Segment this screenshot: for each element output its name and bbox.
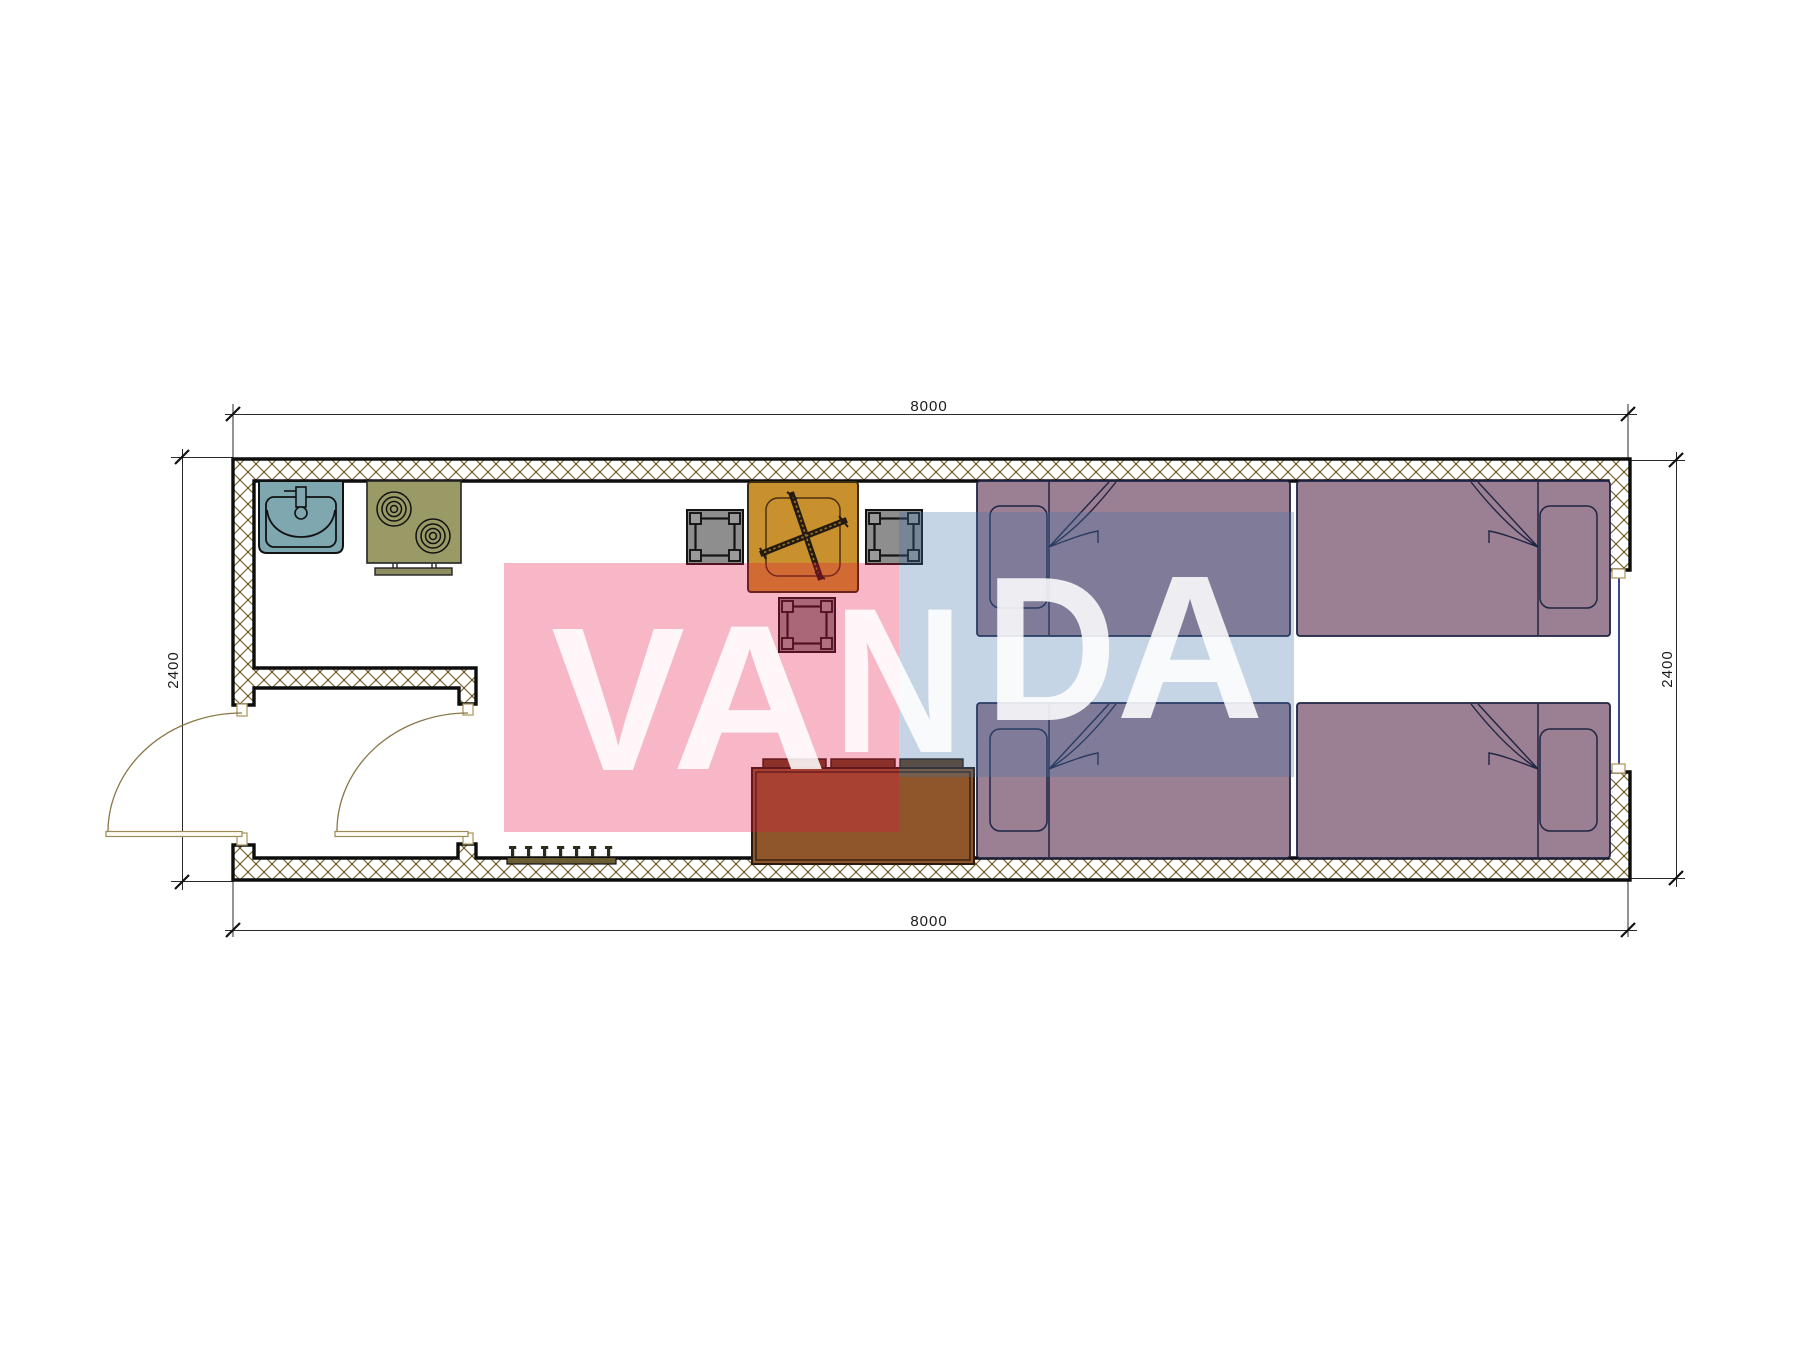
- svg-text:2400: 2400: [165, 651, 182, 688]
- svg-text:N: N: [833, 566, 964, 797]
- svg-text:A: A: [672, 582, 827, 813]
- svg-text:D: D: [985, 535, 1117, 765]
- svg-text:2400: 2400: [1659, 650, 1676, 687]
- svg-text:8000: 8000: [910, 398, 947, 415]
- svg-text:A: A: [1116, 533, 1264, 762]
- svg-text:8000: 8000: [910, 913, 947, 930]
- svg-text:V: V: [551, 585, 685, 814]
